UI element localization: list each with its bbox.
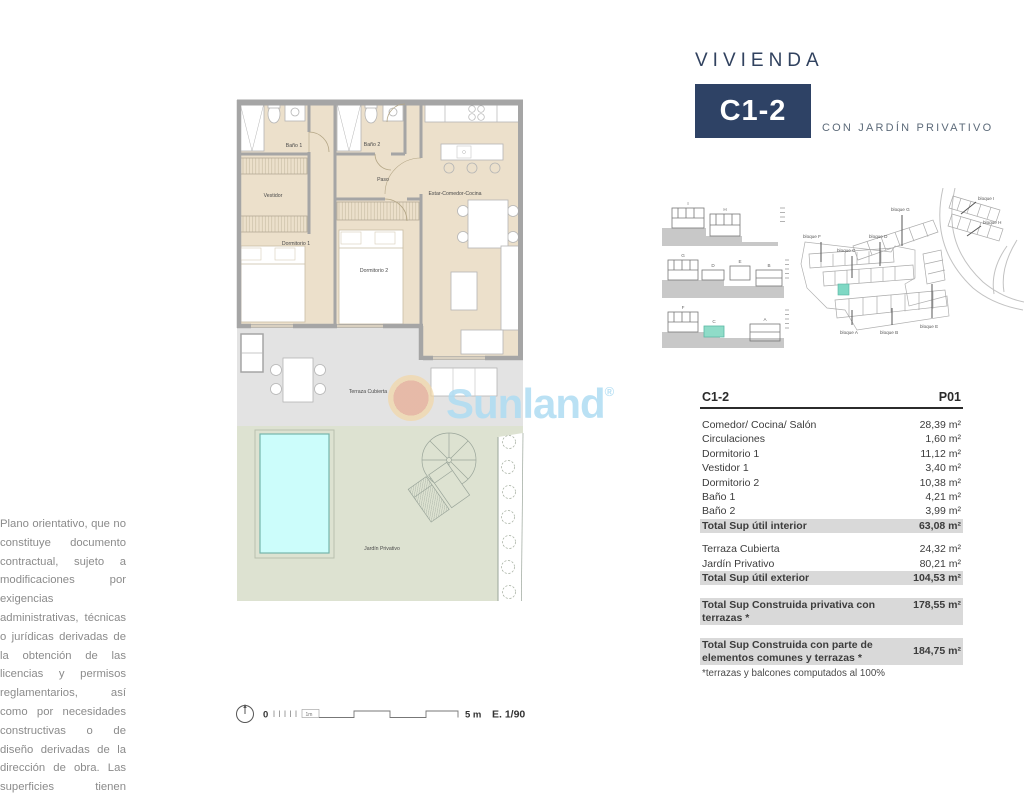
section-letter-B: B	[767, 263, 770, 268]
site-buildings	[809, 196, 1003, 318]
site-boundary	[801, 242, 949, 330]
bloque-e-label: bloque E	[920, 324, 938, 329]
unit-code: C1-2	[720, 95, 787, 128]
bed-dormitorio2	[339, 230, 403, 324]
bloque-d-label: bloque D	[869, 234, 888, 239]
table-row: Baño 14,21 m²	[700, 490, 963, 504]
scale-ratio: E. 1/90	[492, 709, 525, 721]
section-row-3: F C A	[662, 305, 789, 348]
floor-plan: Baño 1 Baño 2 Paso Vestidor Estar-Comedo…	[235, 96, 525, 601]
section-diagrams: I H G D E B F C	[658, 198, 790, 348]
construida-comunes-row: Total Sup Construida con parte de elemen…	[700, 638, 963, 665]
plan-sheet: VIVIENDA C1-2 CON JARDÍN PRIVATIVO Plano…	[0, 0, 1024, 800]
section-letter-D: D	[711, 263, 715, 268]
pool	[255, 430, 334, 558]
highlighted-unit	[838, 284, 849, 295]
label-dormitorio2: Dormitorio 2	[360, 268, 388, 274]
table-unit: C1-2	[702, 390, 729, 404]
bloque-b-label: bloque B	[880, 330, 898, 335]
table-row: Baño 23,99 m²	[700, 504, 963, 518]
garden-shrubs	[502, 436, 516, 602]
label-jardin: Jardín Privativo	[364, 546, 400, 552]
table-row: Vestidor 13,40 m²	[700, 461, 963, 475]
construida-privativa-row: Total Sup Construida privativa con terra…	[700, 598, 963, 625]
label-bano2: Baño 2	[364, 142, 381, 148]
north-icon	[237, 705, 254, 723]
bloque-i-label: bloque I	[978, 196, 994, 201]
header-subtitle: CON JARDÍN PRIVATIVO	[822, 122, 992, 134]
table-header: C1-2 P01	[700, 390, 963, 409]
scale-segments	[319, 711, 458, 718]
scale-ticks	[274, 711, 296, 718]
section-letter-G: G	[681, 253, 685, 258]
label-bano1: Baño 1	[286, 143, 303, 149]
section-row-1: I H	[662, 201, 785, 246]
bloque-g-label: bloque G	[891, 207, 910, 212]
site-roads	[940, 188, 1024, 310]
scale-5m: 5 m	[465, 710, 481, 721]
bloque-f-label: bloque F	[803, 234, 821, 239]
unit-badge: C1-2	[695, 84, 811, 138]
registered-mark: ®	[605, 384, 614, 399]
scale-zero: 0	[263, 710, 268, 721]
bloque-c-label: bloque C	[837, 248, 856, 253]
table-row: Comedor/ Cocina/ Salón28,39 m²	[700, 418, 963, 432]
table-floor: P01	[939, 390, 961, 404]
bloque-h-label: bloque H	[983, 220, 1001, 225]
outdoor-sofa	[431, 368, 497, 396]
label-vestidor: Vestidor	[264, 193, 283, 199]
label-estar: Estar-Comedor-Cocina	[428, 191, 481, 197]
table-row: Circulaciones1,60 m²	[700, 432, 963, 446]
terrace-closet	[241, 334, 263, 372]
table-row: Dormitorio 111,12 m²	[700, 447, 963, 461]
exterior-total-row: Total Sup útil exterior104,53 m²	[700, 571, 963, 585]
section-letter-E: E	[738, 259, 741, 264]
section-letter-A: A	[763, 317, 767, 322]
table-row: Terraza Cubierta24,32 m²	[700, 542, 963, 556]
table-footnote: *terrazas y balcones computados al 100%	[700, 668, 963, 679]
areas-table: C1-2 P01 Comedor/ Cocina/ Salón28,39 m² …	[700, 390, 963, 679]
section-letter-C: C	[712, 319, 716, 324]
header: VIVIENDA C1-2 CON JARDÍN PRIVATIVO	[695, 50, 995, 138]
table-row: Dormitorio 210,38 m²	[700, 476, 963, 490]
interior-total-row: Total Sup útil interior63,08 m²	[700, 519, 963, 533]
scale-bar: 0 1m 5 m E. 1/90	[230, 700, 530, 728]
section-letter-F: F	[682, 305, 685, 310]
bed-dormitorio1	[241, 246, 305, 322]
label-dormitorio1: Dormitorio 1	[282, 241, 310, 247]
label-paso: Paso	[377, 177, 389, 183]
legal-disclaimer: Plano orientativo, que no constituye doc…	[0, 515, 126, 800]
page-title: VIVIENDA	[695, 50, 811, 72]
section-row-2: G D E B	[662, 253, 789, 298]
section-letter-H: H	[723, 207, 726, 212]
site-plan: bloque F bloque C bloque D bloque G bloq…	[795, 188, 1024, 358]
scale-1m: 1m	[306, 712, 313, 718]
bloque-a-label: bloque A	[840, 330, 859, 335]
label-terraza: Terraza Cubierta	[349, 389, 387, 395]
table-row: Jardín Privativo80,21 m²	[700, 557, 963, 571]
section-letter-I: I	[687, 201, 688, 206]
